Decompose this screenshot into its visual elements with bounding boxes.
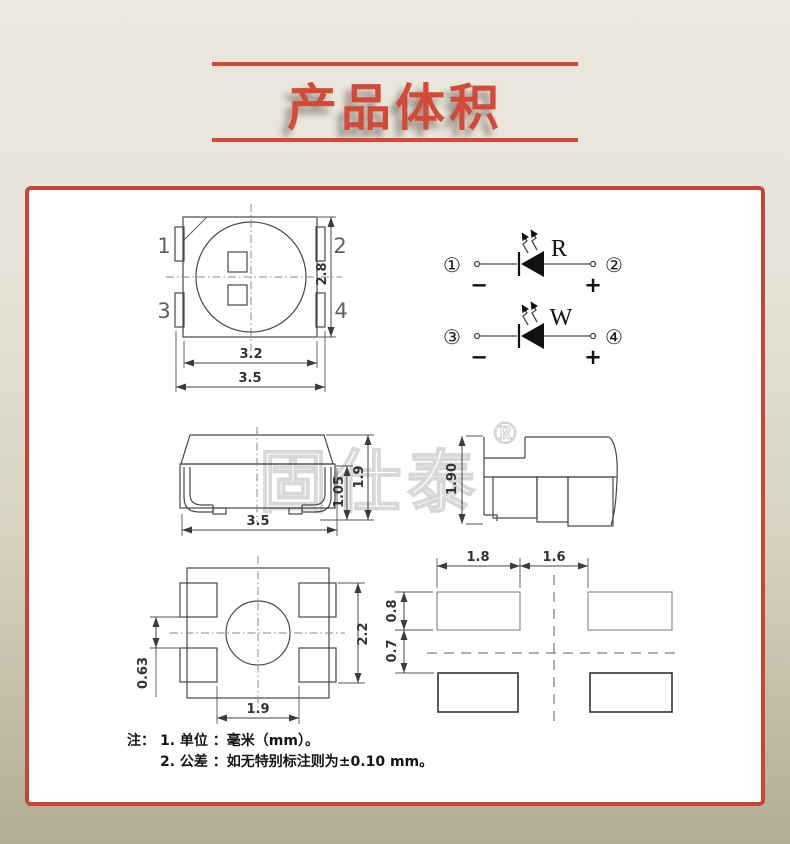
led-chip-1: [228, 252, 247, 272]
terminal-1-label: ①: [443, 253, 461, 277]
dim-pad-gap-0-63: 0.63: [136, 617, 183, 697]
light-emission-arrow: [531, 302, 537, 322]
dim-value: 0.63: [136, 657, 151, 689]
notes-prefix: 注：: [127, 732, 155, 749]
polarity-neg: −: [470, 345, 488, 369]
notes: 注： 1. 单位 ：毫米（mm）。 2. 公差 ：如无特别标注则为±0.10 m…: [127, 732, 433, 770]
circuit-row-white: ③ ④ W − +: [443, 302, 623, 369]
bottom-pad-3: [180, 648, 217, 682]
terminal-dot: [475, 262, 480, 267]
terminal-dot: [591, 334, 596, 339]
terminal-4-label: ④: [605, 325, 623, 349]
dim-value: 3.5: [246, 514, 269, 529]
note-line-2: 2. 公差 ：如无特别标注则为±0.10 mm。: [160, 753, 433, 770]
light-emission-arrow: [522, 233, 528, 253]
terminal-dot: [475, 334, 480, 339]
led-triangle: [521, 251, 544, 277]
terminal-dot: [591, 262, 596, 267]
dim-value: 1.9: [352, 465, 367, 488]
dim-pad-width-1-8: 1.8: [437, 550, 520, 588]
polarity-neg: −: [470, 273, 488, 297]
light-emission-arrow: [531, 230, 537, 250]
led-color-label: W: [550, 305, 573, 331]
pin-label-4: 4: [334, 299, 347, 323]
pin-label-3: 3: [157, 299, 170, 323]
pad-layout-centerlines: [427, 575, 678, 728]
dim-row-offset-0-7: 0.7: [385, 630, 434, 673]
light-emission-arrow: [522, 305, 528, 325]
side-lead-3: [568, 477, 613, 526]
circuit-diagram: ① ② R − + ③ ④ W − +: [443, 230, 623, 369]
pin1-chamfer-mark: [183, 217, 207, 241]
bottom-view-centerlines: [170, 556, 345, 712]
pad-layout: 1.8 1.6 0.8 0.7: [385, 550, 678, 728]
led-triangle: [521, 323, 544, 349]
dim-value: 1.6: [542, 550, 565, 565]
dim-value: 1.8: [466, 550, 489, 565]
side-lead-2: [537, 477, 568, 522]
dim-value: 3.2: [239, 347, 262, 362]
polarity-pos: +: [584, 345, 602, 369]
pin-label-1: 1: [157, 234, 170, 258]
note-line-1: 1. 单位 ：毫米（mm）。: [160, 732, 319, 749]
dim-value: 2.2: [356, 622, 371, 645]
lead-foot: [213, 508, 226, 514]
registered-mark-icon: ®: [493, 414, 517, 450]
circuit-row-red: ① ② R − +: [443, 230, 623, 297]
side-lead-1: [493, 477, 537, 518]
brand-watermark: 固仕泰 ®: [259, 414, 517, 521]
side-view-top-right: [525, 437, 617, 525]
dim-value: 1.05: [332, 476, 347, 508]
led-color-label: R: [551, 236, 567, 262]
terminal-2-label: ②: [605, 253, 623, 277]
dim-value: 0.7: [385, 639, 400, 662]
layout-pad-2: [588, 592, 672, 630]
bottom-pad-4: [299, 648, 336, 682]
top-view: 1 3 2 4 2.8 3.2 3.5: [157, 204, 347, 392]
dim-value: 1.90: [445, 463, 460, 495]
bottom-view: 0.63 2.2 1.9: [136, 556, 371, 724]
layout-pad-1: [437, 592, 520, 630]
layout-pad-3: [438, 673, 518, 712]
left-j-lead: [184, 467, 213, 512]
bottom-pad-2: [299, 583, 336, 617]
pin-label-2: 2: [333, 234, 346, 258]
dim-pad-height-0-8: 0.8: [385, 592, 433, 630]
polarity-pos: +: [584, 273, 602, 297]
dim-value: 2.8: [315, 262, 330, 285]
product-dimension-page: { "header": { "title": "产品体积" }, "waterm…: [0, 0, 790, 844]
led-chip-2: [228, 285, 247, 305]
bottom-pad-1: [180, 583, 217, 617]
dim-value: 0.8: [385, 599, 400, 622]
layout-pad-4: [590, 673, 672, 712]
dim-value: 3.5: [238, 371, 261, 386]
terminal-3-label: ③: [443, 325, 461, 349]
dim-value: 1.9: [246, 702, 269, 717]
drawing-canvas: 固仕泰 ® 1 3 2 4 2.8 3.2 3.5: [0, 0, 790, 844]
